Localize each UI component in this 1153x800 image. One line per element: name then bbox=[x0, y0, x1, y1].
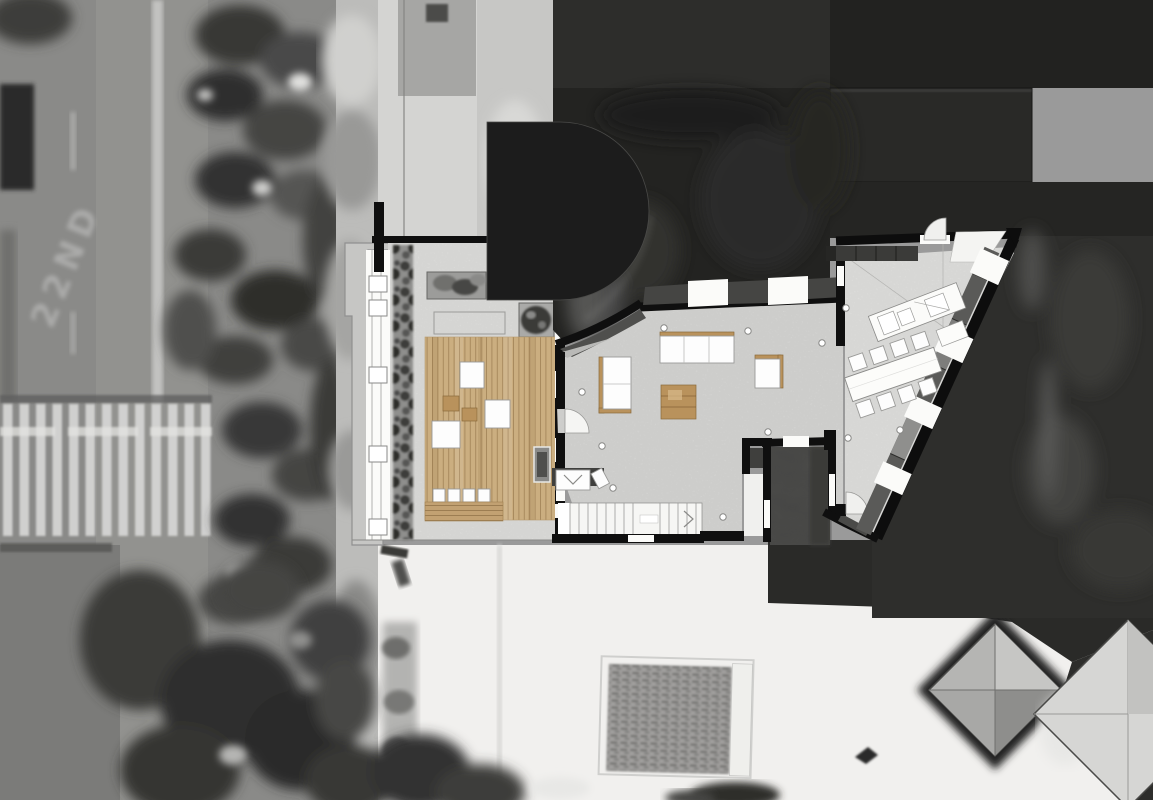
facade-mullion bbox=[369, 367, 387, 383]
window-gap bbox=[837, 266, 844, 286]
bar-stool bbox=[433, 489, 445, 502]
living-west-wall bbox=[556, 352, 565, 409]
site-plan-collage: 22ND bbox=[0, 0, 1153, 800]
roof-panel-joint bbox=[497, 545, 502, 800]
window-gap bbox=[829, 474, 835, 506]
stair-run bbox=[570, 503, 702, 536]
curb-shadow bbox=[0, 230, 16, 400]
facade-mullion bbox=[369, 276, 387, 292]
armchair bbox=[755, 355, 783, 388]
dark-flat-roof-corner bbox=[830, 0, 1153, 88]
stair-mid-landing bbox=[640, 515, 658, 523]
lounge-table bbox=[485, 400, 510, 428]
deck-north-wall bbox=[372, 236, 488, 243]
west-glazed-facade bbox=[366, 250, 390, 540]
two-seat-sofa bbox=[599, 357, 631, 413]
facade-mullion bbox=[369, 446, 387, 462]
bar-stool bbox=[478, 489, 490, 502]
lane-dash bbox=[70, 112, 76, 170]
clay-tile-roof bbox=[599, 656, 754, 778]
dark-roof-below-b bbox=[830, 182, 1153, 238]
stair-cabinet bbox=[556, 470, 590, 490]
plan-canvas: 22ND bbox=[0, 0, 1153, 800]
living-west-wall bbox=[556, 433, 565, 471]
parapet-segment bbox=[728, 280, 768, 304]
parapet-segment bbox=[643, 284, 688, 305]
lane-dash bbox=[70, 312, 76, 354]
light-notch bbox=[744, 474, 764, 536]
bar-bench bbox=[425, 502, 503, 521]
window-gap bbox=[764, 500, 770, 528]
window-gap bbox=[768, 276, 808, 305]
far-stop-line bbox=[0, 543, 112, 552]
bar-stool bbox=[463, 489, 475, 502]
tree-planter bbox=[519, 303, 554, 337]
lounge-table bbox=[432, 421, 460, 448]
planter-box bbox=[427, 272, 486, 299]
window-gap bbox=[628, 535, 654, 542]
dark-flat-roof-b bbox=[830, 88, 1032, 182]
living-south-wall bbox=[700, 531, 744, 541]
window-gap bbox=[783, 436, 809, 447]
side-table bbox=[443, 396, 459, 411]
parked-vehicle-shadow bbox=[0, 84, 34, 190]
planter-strip bbox=[393, 245, 413, 540]
fire-pit bbox=[534, 447, 550, 482]
dining-west-wall bbox=[836, 504, 846, 516]
roof-b-edge-highlight bbox=[830, 89, 1032, 92]
lounge-table bbox=[460, 362, 484, 388]
bar-stool bbox=[448, 489, 460, 502]
three-seat-sofa bbox=[660, 332, 734, 363]
coffee-table bbox=[661, 385, 696, 419]
dining-west-wall bbox=[824, 430, 836, 450]
facade-mullion bbox=[369, 300, 387, 316]
courtyard-corner-wall bbox=[742, 438, 750, 474]
window-gap bbox=[688, 279, 728, 307]
lane-divider-line bbox=[152, 0, 163, 402]
stop-line bbox=[0, 395, 212, 403]
wall-cabinet bbox=[826, 246, 836, 261]
wall-cabinets bbox=[836, 246, 918, 261]
facade-mullion bbox=[369, 519, 387, 535]
side-table bbox=[462, 408, 477, 421]
dark-flat-roof-a bbox=[553, 0, 830, 88]
courtyard-void bbox=[742, 436, 836, 545]
